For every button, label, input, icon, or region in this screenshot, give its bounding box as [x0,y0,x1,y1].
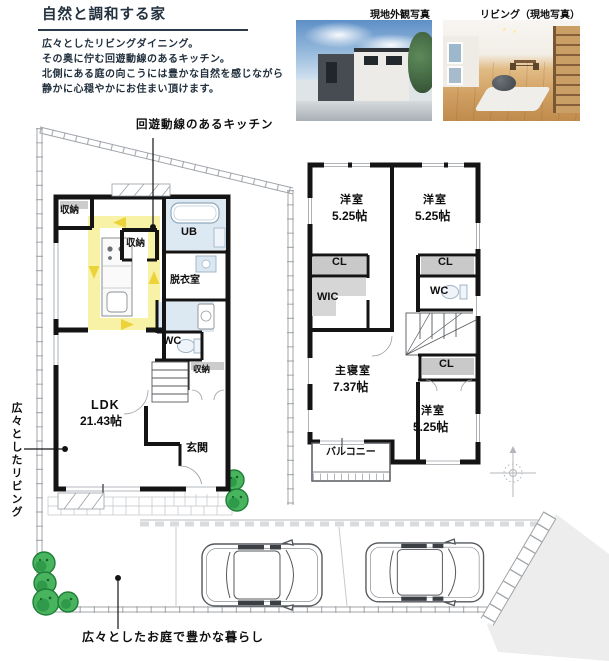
stairs-1f [152,362,188,402]
stairs-2f [406,313,476,355]
photo-label-living: リビング（現地写真） [443,6,580,21]
room-label-closet: CL [332,257,347,268]
room-size-bedroom: 5.25帖 [415,210,450,222]
room-label-bedroom: 洋室 [340,195,364,206]
room-label-closet: 収納 [60,206,79,216]
room-label-unit-bath: UB [181,227,197,238]
room-label-closet: CL [439,359,454,370]
kitchen-sink [107,292,127,312]
room-label-closet: 収納 [126,239,145,249]
floorplan-1f [51,184,228,509]
beanbag [492,75,515,91]
room-label-master: 主寝室 [335,366,371,377]
house-window [326,62,337,82]
compass-icon [490,446,536,497]
room-label-bedroom: 洋室 [421,406,445,417]
downlights [503,28,506,31]
house-window [364,56,378,65]
dining-chair [510,63,515,70]
description-line: その奥に佇む回遊動線のあるキッチン。 [42,55,230,65]
description-line: 広々としたリビングダイニング。 [42,40,199,50]
room-size-bedroom: 5.25帖 [413,421,448,433]
room-label-closet: 収納 [193,365,210,374]
living-room-photo [443,20,580,121]
exterior-photo [296,20,432,121]
description-line: 北側にある庭の向こうには豊かな自然を感じながら [42,70,284,80]
description-line: 静かに心穏やかにお住まい頂けます。 [42,85,220,95]
photo-label-exterior: 現地外観写真 [296,6,430,21]
terrace-hatch [58,493,104,509]
wood-stairs [553,26,580,113]
room-label-dressing: 脱衣室 [170,276,200,286]
living-window [447,66,463,84]
room-label-balcony: バルコニー [326,448,376,458]
house-window [386,56,402,65]
property-flyer: 自然と調和する家 広々としたリビングダイニング。 その奥に佇む回遊動線のあるキッ… [0,0,609,661]
annotation-kitchen: 回遊動線のあるキッチン [136,120,274,132]
room-label-entrance: 玄関 [186,443,208,454]
living-window [447,42,463,64]
room-label-bedroom: 洋室 [423,195,447,206]
room-label-wc: WC [430,286,448,297]
driveway-ground [296,101,432,121]
car-icon [202,539,484,610]
room-label-closet: CL [438,257,453,268]
dining-chair [533,63,538,70]
room-size-master: 7.37帖 [333,381,368,393]
room-label-ldk: LDK [91,399,120,412]
page-title: 自然と調和する家 [42,8,166,23]
annotation-garden: 広々としたお庭で豊かな暮らし [82,631,264,643]
title-underline [38,29,248,31]
room-label-wc: WC [163,336,181,347]
washing-machine [198,304,214,329]
room-label-wic: WIC [317,292,338,303]
annotation-living: 広々としたリビング [10,402,21,519]
road [481,512,609,661]
room-size-bedroom: 5.25帖 [332,210,367,222]
room-size-ldk: 21.43帖 [80,415,122,427]
garden-greenery [408,32,432,93]
house-dark-wing [318,54,356,100]
